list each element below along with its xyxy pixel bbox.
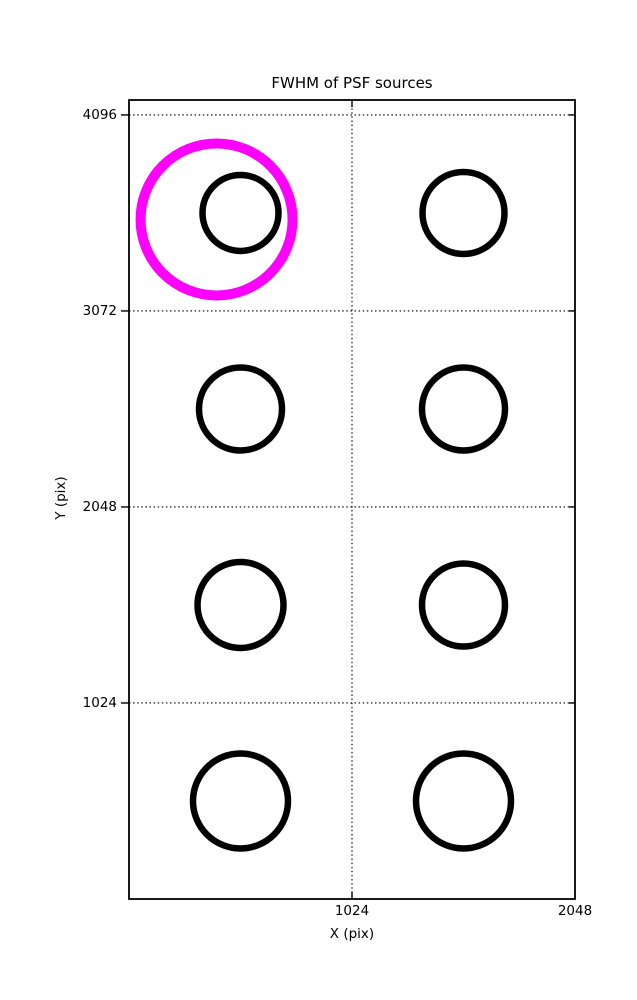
y-tick-label: 3072 <box>47 302 117 320</box>
psf-source-marker <box>416 753 511 848</box>
psf-source-marker <box>198 562 284 648</box>
figure: FWHM of PSF sources 1024204830724096 102… <box>0 0 637 1000</box>
x-tick-label: 2048 <box>540 902 610 920</box>
psf-source-marker <box>193 753 288 848</box>
psf-source-marker <box>199 367 282 450</box>
psf-source-marker <box>203 175 279 251</box>
psf-source-markers <box>141 143 511 848</box>
psf-source-marker <box>422 563 505 646</box>
psf-source-marker <box>423 172 505 254</box>
y-tick-label: 4096 <box>47 106 117 124</box>
highlight-marker <box>141 143 293 295</box>
y-tick-label: 1024 <box>47 694 117 712</box>
psf-source-marker <box>422 367 505 450</box>
y-axis-label: Y (pix) <box>52 398 70 598</box>
x-axis-label: X (pix) <box>129 926 575 942</box>
x-tick-label: 1024 <box>317 902 387 920</box>
